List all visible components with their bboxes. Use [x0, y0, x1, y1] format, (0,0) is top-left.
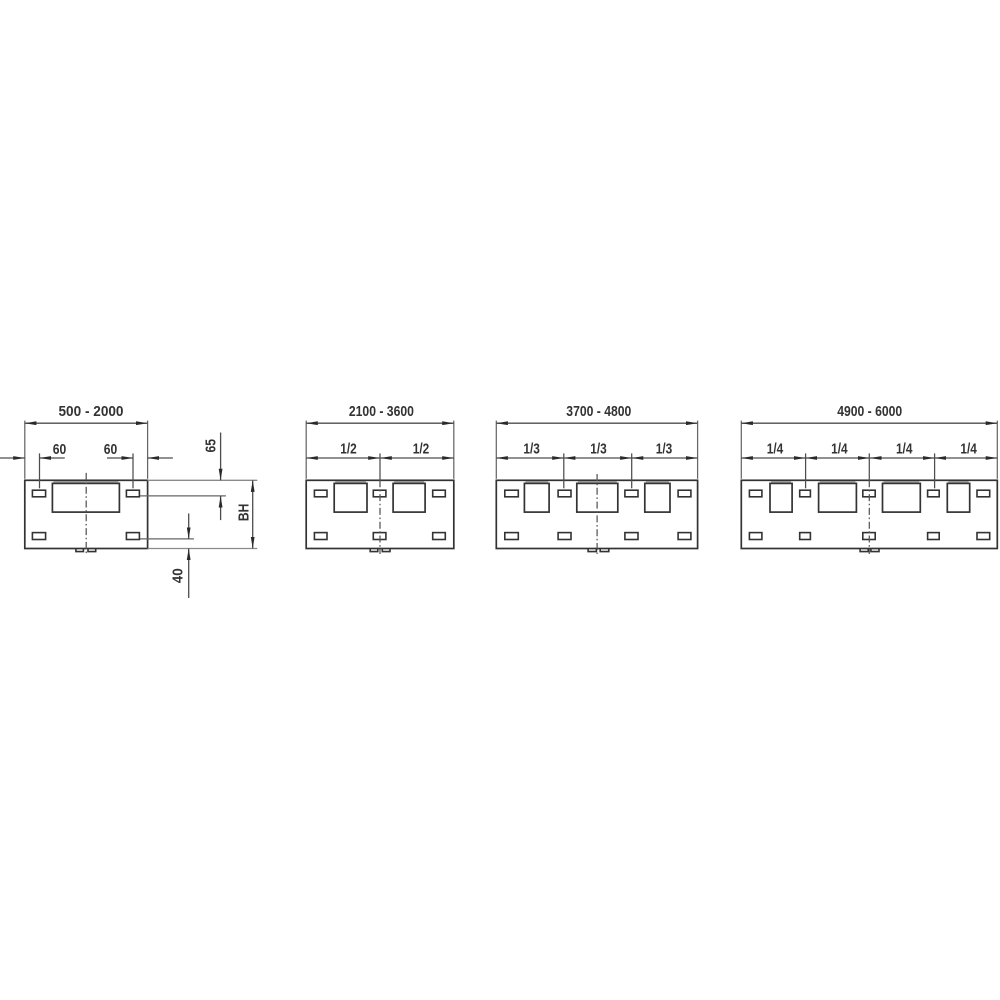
svg-text:4900 - 6000: 4900 - 6000 — [837, 403, 902, 420]
svg-text:1/4: 1/4 — [767, 442, 784, 458]
svg-text:3700 - 4800: 3700 - 4800 — [566, 403, 631, 420]
svg-text:BH: BH — [235, 504, 252, 522]
svg-text:1/3: 1/3 — [523, 442, 540, 458]
svg-text:1/2: 1/2 — [413, 442, 430, 458]
svg-text:1/4: 1/4 — [960, 442, 977, 458]
svg-text:65: 65 — [202, 439, 219, 453]
svg-text:1/3: 1/3 — [590, 442, 607, 458]
svg-text:60: 60 — [53, 442, 67, 458]
svg-text:40: 40 — [170, 568, 187, 583]
svg-text:2100 - 3600: 2100 - 3600 — [349, 403, 414, 420]
svg-text:1/4: 1/4 — [896, 442, 913, 458]
svg-text:1/2: 1/2 — [340, 442, 357, 458]
svg-text:500 - 2000: 500 - 2000 — [59, 403, 124, 420]
svg-text:1/3: 1/3 — [656, 442, 673, 458]
svg-text:60: 60 — [104, 442, 118, 458]
svg-text:1/4: 1/4 — [831, 442, 848, 458]
